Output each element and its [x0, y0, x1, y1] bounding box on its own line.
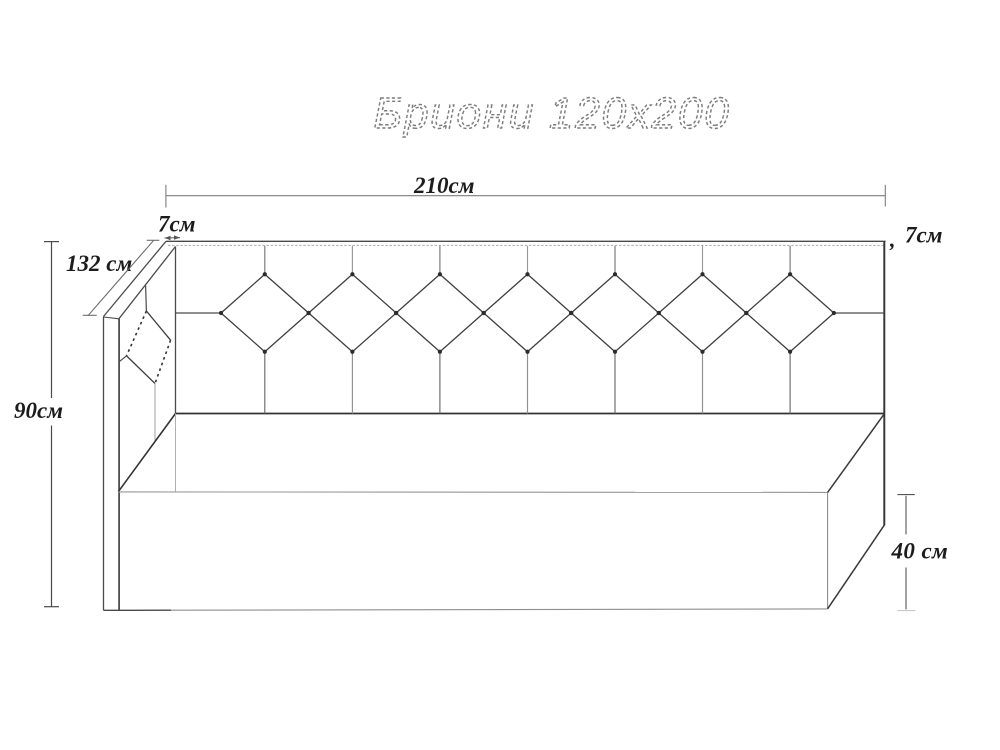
- svg-text:40 см: 40 см: [891, 539, 949, 564]
- svg-text:7см: 7см: [158, 212, 195, 237]
- svg-text:Бриони 120x200: Бриони 120x200: [374, 89, 731, 138]
- svg-text:,: ,: [889, 227, 896, 252]
- svg-text:132 см: 132 см: [66, 251, 132, 276]
- svg-text:210см: 210см: [413, 173, 474, 198]
- svg-text:90см: 90см: [14, 398, 63, 423]
- svg-text:7см: 7см: [905, 223, 942, 248]
